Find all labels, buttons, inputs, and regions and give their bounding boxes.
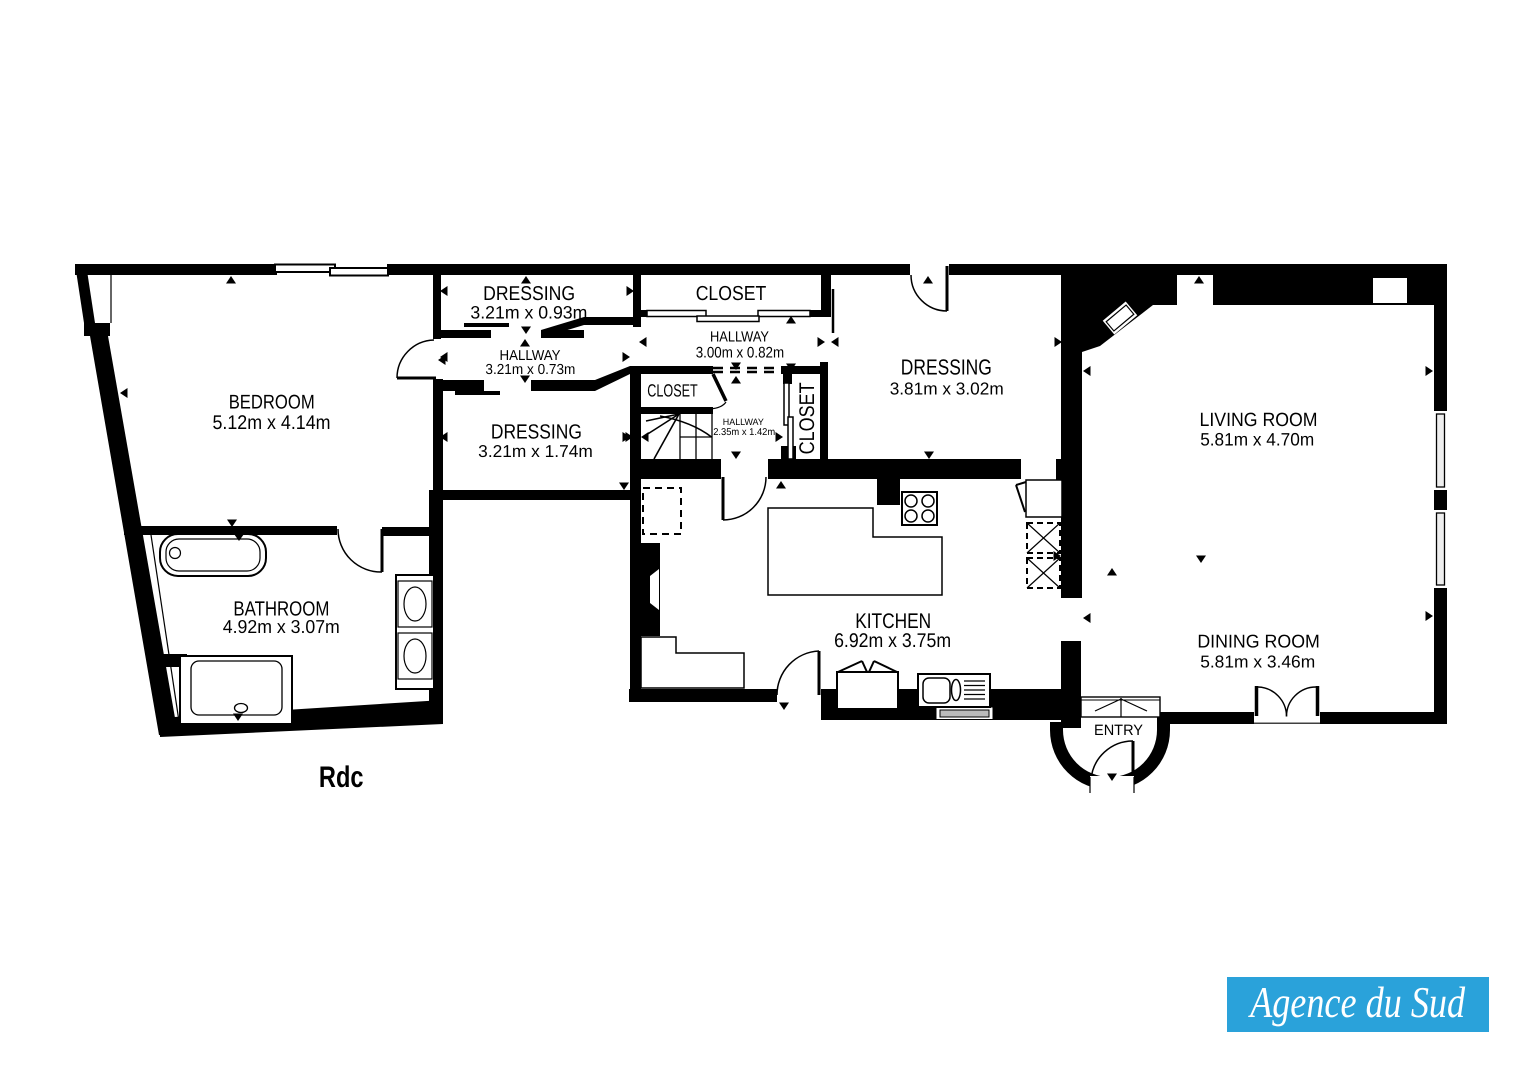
svg-text:BEDROOM: BEDROOM (229, 392, 315, 414)
svg-text:HALLWAY: HALLWAY (723, 417, 764, 427)
svg-text:DINING ROOM: DINING ROOM (1197, 631, 1320, 652)
svg-text:CLOSET: CLOSET (696, 283, 767, 305)
svg-text:CLOSET: CLOSET (796, 382, 819, 454)
svg-text:Rdc: Rdc (319, 761, 364, 794)
svg-text:2.35m x 1.42m: 2.35m x 1.42m (713, 427, 775, 438)
svg-text:DRESSING: DRESSING (483, 283, 575, 305)
svg-text:5.12m x 4.14m: 5.12m x 4.14m (213, 412, 331, 434)
svg-text:DRESSING: DRESSING (901, 355, 992, 380)
svg-text:ENTRY: ENTRY (1094, 722, 1143, 739)
svg-text:4.92m x 3.07m: 4.92m x 3.07m (223, 616, 340, 637)
svg-text:6.92m x 3.75m: 6.92m x 3.75m (834, 630, 951, 652)
svg-text:LIVING ROOM: LIVING ROOM (1200, 410, 1318, 431)
svg-text:3.21m x 0.93m: 3.21m x 0.93m (470, 303, 587, 323)
svg-text:3.81m x 3.02m: 3.81m x 3.02m (890, 378, 1004, 398)
svg-text:3.00m x 0.82m: 3.00m x 0.82m (696, 344, 784, 361)
svg-text:5.81m x 4.70m: 5.81m x 4.70m (1200, 430, 1314, 450)
svg-text:3.21m x 0.73m: 3.21m x 0.73m (485, 362, 575, 378)
svg-text:CLOSET: CLOSET (647, 381, 698, 401)
svg-text:3.21m x 1.74m: 3.21m x 1.74m (478, 441, 593, 461)
svg-text:5.81m x 3.46m: 5.81m x 3.46m (1200, 651, 1315, 671)
svg-text:Agence du Sud: Agence du Sud (1248, 978, 1466, 1027)
svg-text:HALLWAY: HALLWAY (710, 330, 769, 346)
